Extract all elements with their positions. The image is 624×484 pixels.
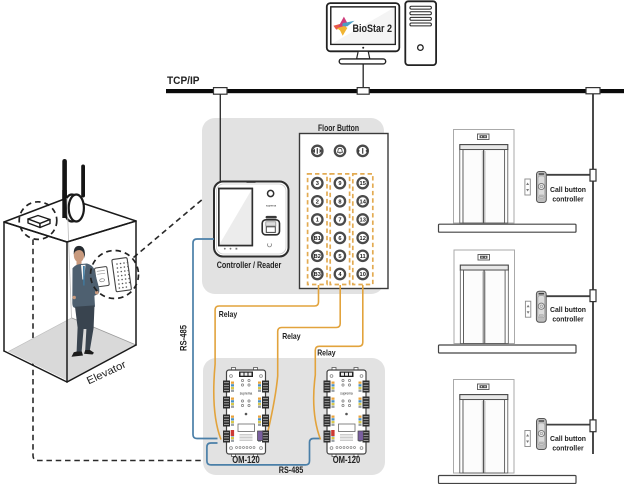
svg-text:suprema: suprema <box>266 204 277 208</box>
svg-text:7: 7 <box>338 218 341 224</box>
svg-text:Relay: Relay <box>317 349 336 358</box>
svg-text:Call button: Call button <box>550 434 586 443</box>
svg-text:RS-485: RS-485 <box>279 465 304 476</box>
svg-text:Relay: Relay <box>219 310 238 319</box>
svg-text:2: 2 <box>316 199 319 205</box>
svg-text:OM-120: OM-120 <box>333 455 361 466</box>
svg-text:11: 11 <box>360 254 366 260</box>
svg-text:RS-485: RS-485 <box>179 325 189 351</box>
svg-text:controller: controller <box>552 315 583 324</box>
svg-text:controller: controller <box>552 443 583 452</box>
svg-text:1: 1 <box>316 218 319 224</box>
svg-text:10: 10 <box>360 272 366 278</box>
svg-text:TCP/IP: TCP/IP <box>167 75 200 87</box>
svg-text:Relay: Relay <box>282 332 301 341</box>
svg-text:B1: B1 <box>314 236 321 242</box>
svg-text:5: 5 <box>338 254 341 260</box>
svg-text:Call button: Call button <box>550 305 586 314</box>
svg-text:6: 6 <box>338 236 341 242</box>
svg-text:B3: B3 <box>314 272 321 278</box>
svg-text:B2: B2 <box>314 254 321 260</box>
svg-text:Call button: Call button <box>550 185 586 194</box>
svg-text:15: 15 <box>360 181 366 187</box>
svg-text:13: 13 <box>360 218 366 224</box>
svg-text:Floor Button: Floor Button <box>318 123 359 133</box>
svg-text:BioStar 2: BioStar 2 <box>353 23 393 35</box>
svg-text:8: 8 <box>338 199 341 205</box>
svg-text:12: 12 <box>360 236 366 242</box>
svg-text:OM-120: OM-120 <box>232 455 260 466</box>
svg-text:9: 9 <box>338 181 341 187</box>
svg-text:Controller / Reader: Controller / Reader <box>217 260 282 270</box>
svg-text:14: 14 <box>360 199 367 205</box>
svg-text:controller: controller <box>552 194 583 203</box>
svg-text:3: 3 <box>316 181 319 187</box>
